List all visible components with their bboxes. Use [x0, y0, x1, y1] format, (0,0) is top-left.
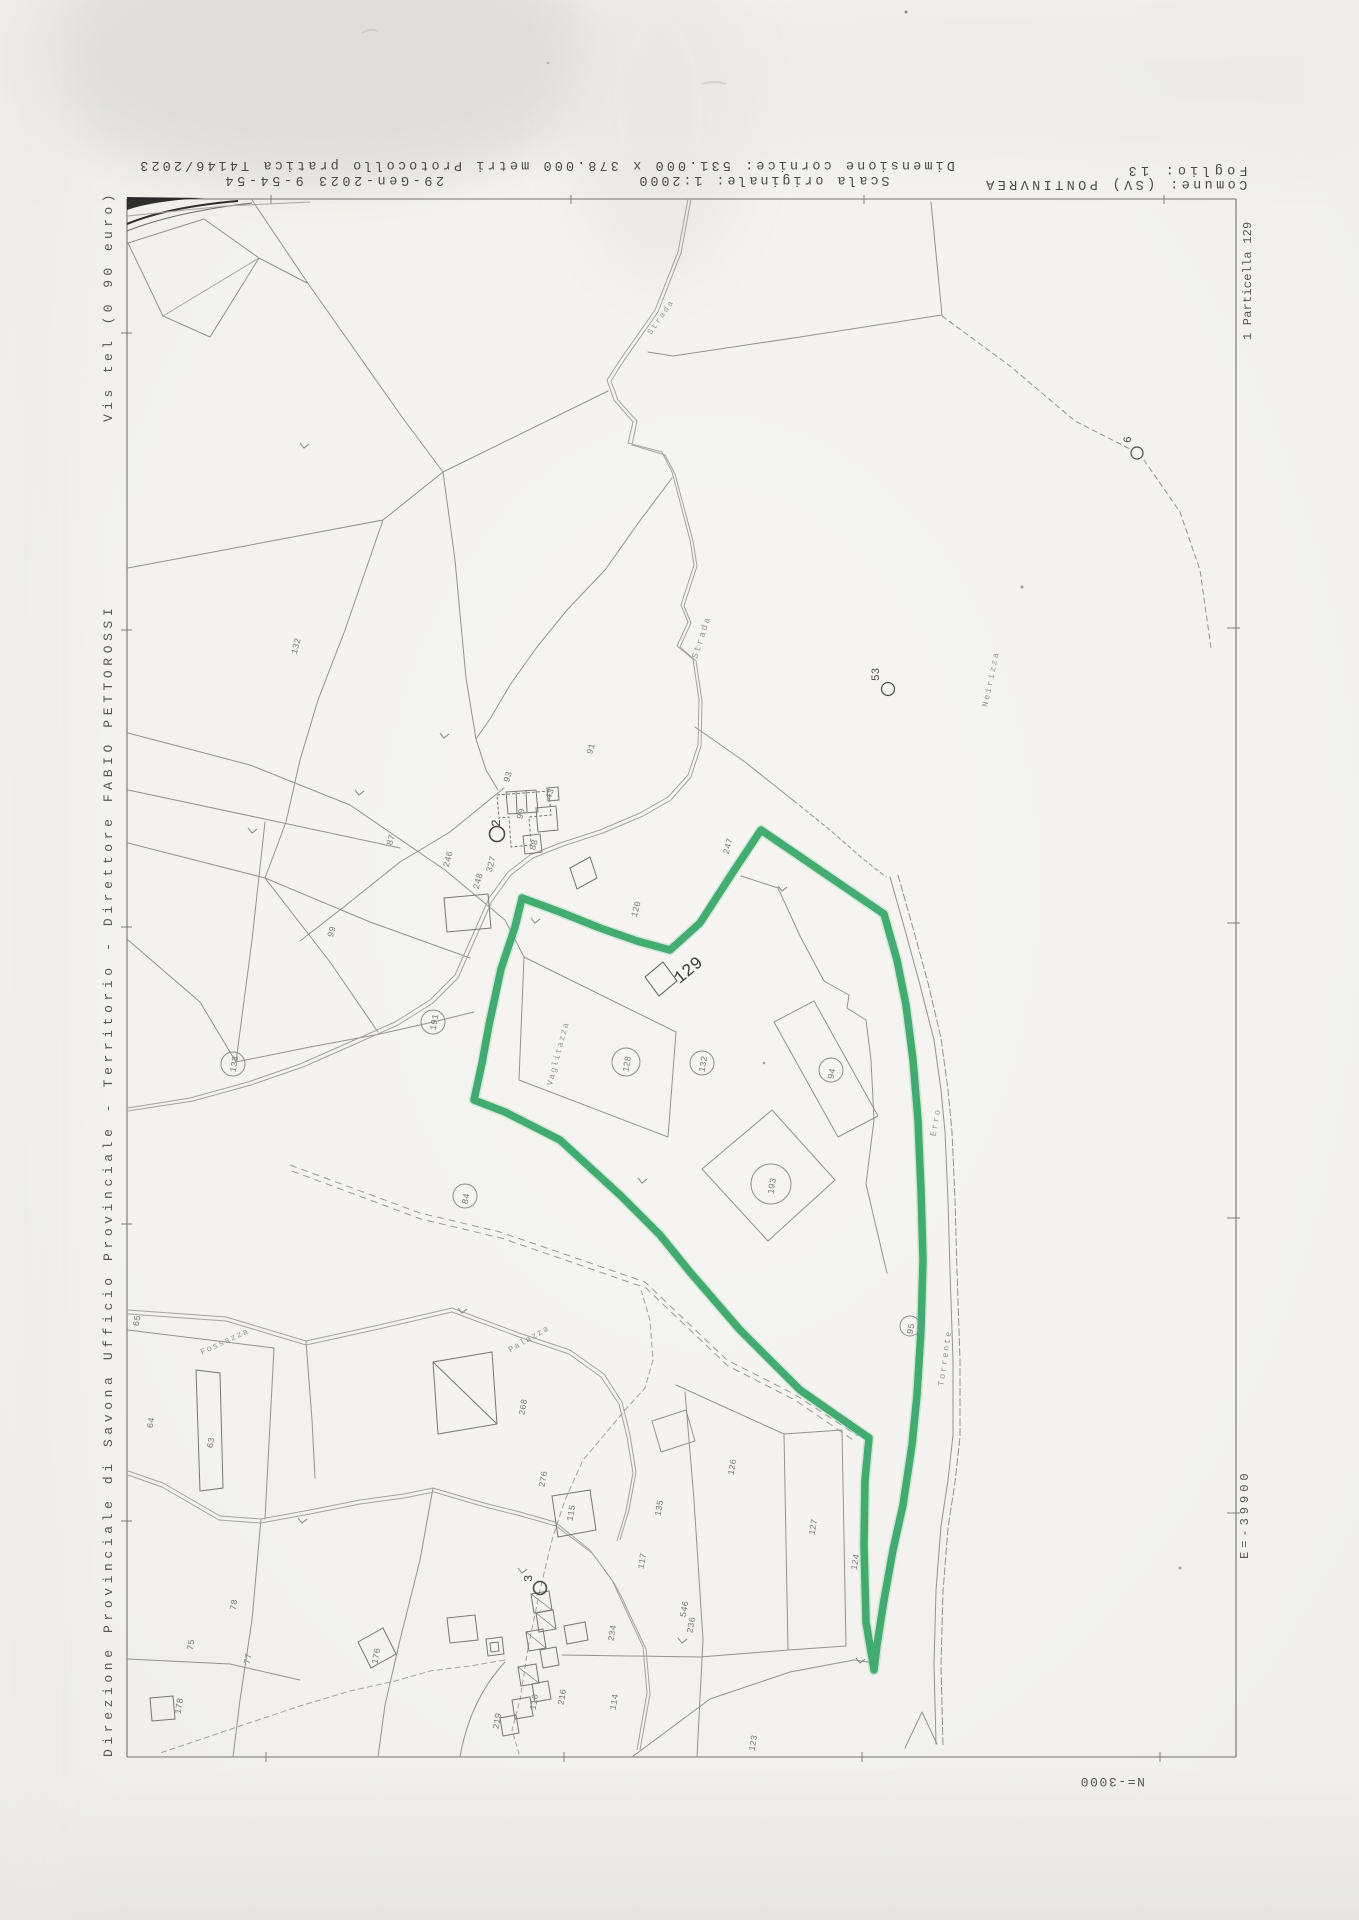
svg-text:1 Particella 129: 1 Particella 129 — [1241, 222, 1255, 340]
svg-text:Dimensione cornice: 531.000 x: Dimensione cornice: 531.000 x 378.000 me… — [137, 157, 955, 172]
svg-text:94: 94 — [826, 1068, 838, 1080]
svg-text:Direzione Provinciale di Savon: Direzione Provinciale di Savona Ufficio … — [101, 604, 116, 1757]
svg-text:75: 75 — [186, 1639, 198, 1651]
svg-text:77: 77 — [243, 1653, 255, 1665]
svg-text:84: 84 — [461, 1193, 473, 1205]
svg-text:53: 53 — [871, 668, 883, 681]
svg-text:Foglio: 13: Foglio: 13 — [1124, 162, 1247, 177]
svg-text:Scala originale: 1:2000: Scala originale: 1:2000 — [636, 172, 889, 187]
svg-text:65: 65 — [132, 1315, 144, 1327]
svg-text:78: 78 — [229, 1599, 241, 1611]
svg-text:6: 6 — [1123, 436, 1135, 443]
svg-text:Vis tel (0 90 euro): Vis tel (0 90 euro) — [101, 190, 116, 422]
svg-text:Comune: (SV) PONTINVREA: Comune: (SV) PONTINVREA — [983, 176, 1248, 191]
svg-text:95: 95 — [906, 1323, 918, 1335]
svg-text:64: 64 — [146, 1417, 158, 1429]
svg-text:3: 3 — [522, 1575, 536, 1582]
svg-text:E=-39900: E=-39900 — [1238, 1469, 1252, 1559]
svg-text:N=-3000: N=-3000 — [1079, 1774, 1145, 1789]
svg-text:63: 63 — [206, 1437, 218, 1449]
svg-text:29-Gen-2023 9-54-54: 29-Gen-2023 9-54-54 — [222, 172, 444, 187]
svg-text:2: 2 — [489, 819, 504, 827]
